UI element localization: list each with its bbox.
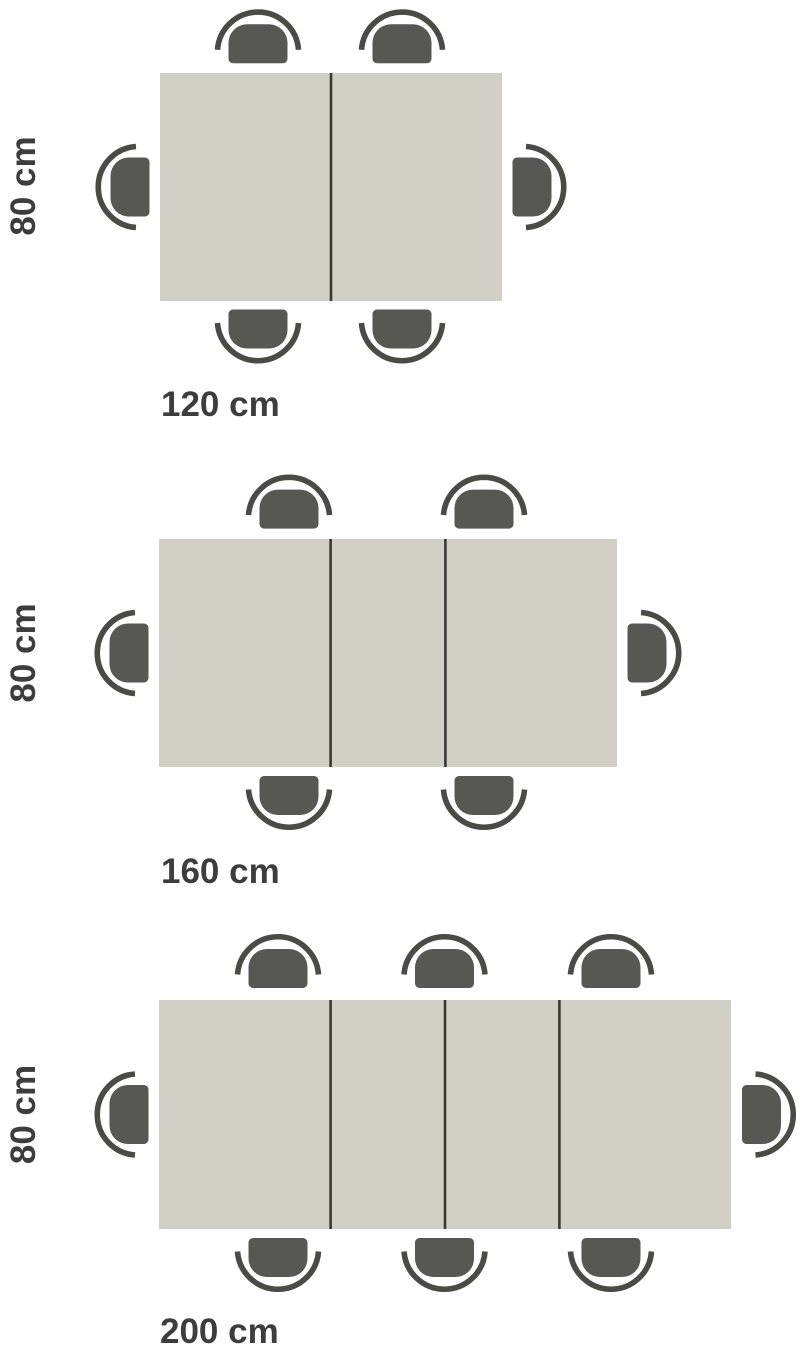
- svg-text:80 cm: 80 cm: [4, 136, 43, 235]
- svg-text:120 cm: 120 cm: [161, 385, 280, 424]
- svg-text:160 cm: 160 cm: [161, 852, 280, 891]
- svg-text:200 cm: 200 cm: [160, 1312, 279, 1348]
- svg-text:80 cm: 80 cm: [4, 603, 43, 702]
- svg-text:80 cm: 80 cm: [4, 1065, 43, 1164]
